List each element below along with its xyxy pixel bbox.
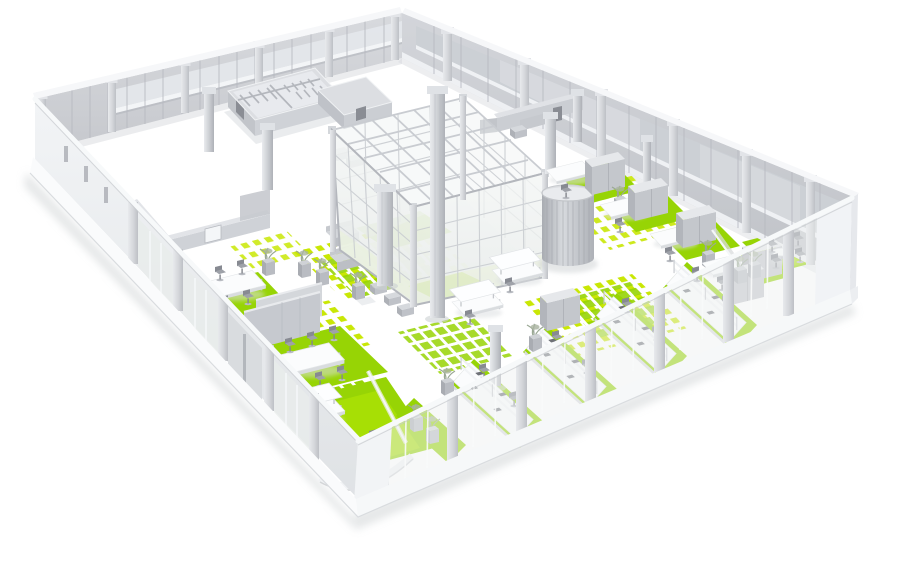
column	[260, 123, 275, 190]
column	[202, 87, 216, 152]
floorplan-render	[0, 0, 900, 563]
atrium-corner-column	[460, 96, 466, 200]
atrium-corner-column	[410, 205, 417, 307]
render-stage	[0, 0, 900, 563]
column	[543, 112, 558, 174]
atrium-corner-column	[330, 130, 336, 252]
